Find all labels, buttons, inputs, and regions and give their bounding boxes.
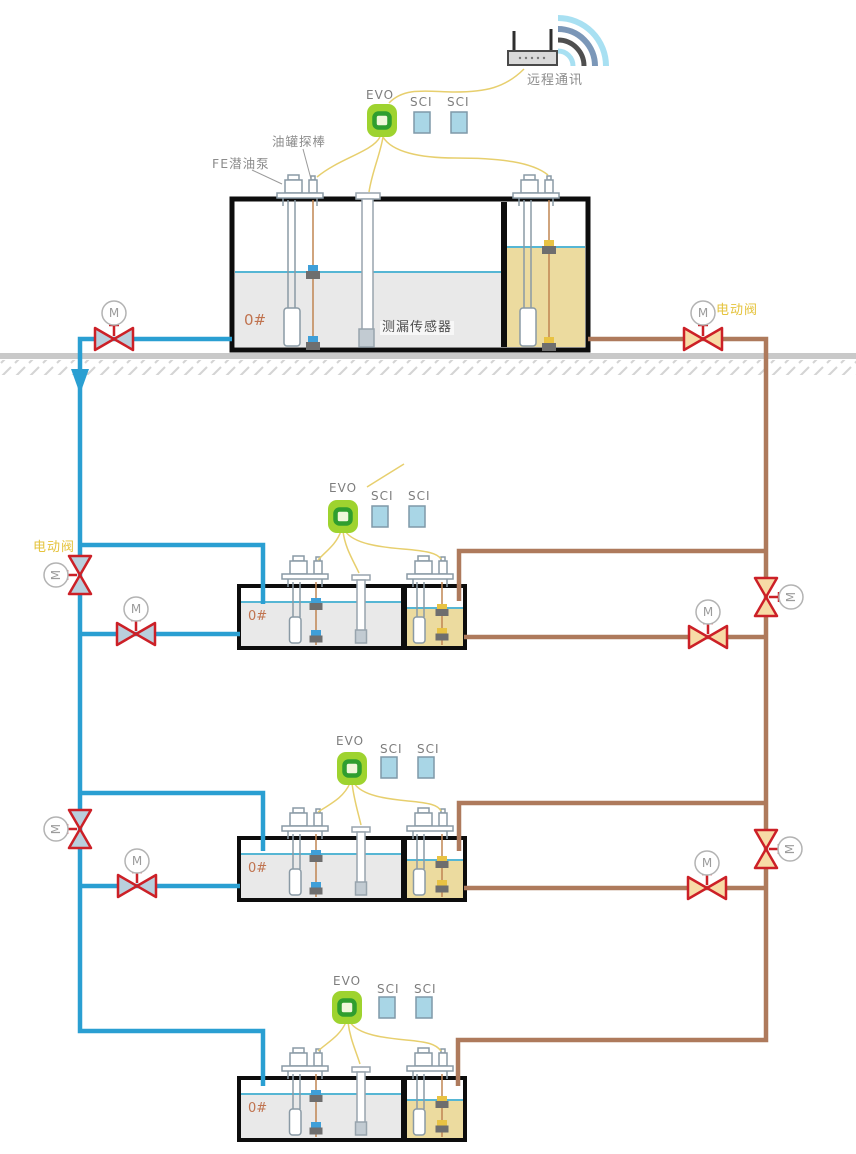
return-pipe-network <box>458 339 766 1086</box>
evo-console <box>328 500 358 533</box>
evo-console <box>332 991 362 1024</box>
motor-letter: M <box>109 306 119 320</box>
sci-module <box>414 112 430 133</box>
station-3-tank <box>239 808 465 900</box>
electric-valve-label: 电动阀 <box>33 541 75 555</box>
submersible-pump-label: FE潜油泵 <box>212 157 270 171</box>
sci-label: SCI <box>380 743 403 756</box>
sci-label: SCI <box>447 96 470 109</box>
sci-label: SCI <box>377 983 400 996</box>
fuel-grade-label: 0# <box>248 1102 267 1116</box>
motor-letter: M <box>784 592 798 602</box>
tank-divider <box>501 202 507 347</box>
evo-label: EVO <box>333 975 361 988</box>
evo-label: EVO <box>366 89 394 102</box>
motor-letter: M <box>698 306 708 320</box>
return-fill-branch-3 <box>459 803 766 851</box>
motor-letter: M <box>702 856 712 870</box>
station-2-tank <box>239 556 465 648</box>
evo-label: EVO <box>336 735 364 748</box>
supply-pipe-network <box>80 339 263 1086</box>
return-pipe-main <box>458 339 766 1086</box>
evo-console <box>337 752 367 785</box>
wire-antenna-stub <box>367 464 404 487</box>
supply-fill-branch-3 <box>80 793 263 851</box>
wifi-signal-icon <box>558 18 606 66</box>
station-4-tank <box>239 1048 465 1140</box>
ground-band <box>0 353 856 359</box>
remote-comm-label: 远程通讯 <box>527 74 583 88</box>
tank-monitoring-diagram: M M M M M M M M M M <box>0 0 856 1154</box>
motor-letter: M <box>49 570 63 580</box>
sci-label: SCI <box>410 96 433 109</box>
sci-label: SCI <box>414 983 437 996</box>
motor-letter: M <box>49 824 63 834</box>
motor-letter: M <box>783 844 797 854</box>
tank-probe-label: 油罐探棒 <box>272 135 326 149</box>
sci-module <box>372 506 388 527</box>
wireless-router <box>508 29 557 65</box>
sci-label: SCI <box>408 490 431 503</box>
motor-letter: M <box>132 854 142 868</box>
motor-valve <box>67 810 91 848</box>
ground-hatch <box>0 360 856 375</box>
return-fill-branch-2 <box>459 551 766 601</box>
sci-module <box>416 997 432 1018</box>
sci-module <box>418 757 434 778</box>
supply-fill-branch-2 <box>80 545 263 604</box>
sci-module <box>381 757 397 778</box>
diagram-canvas: M M M M M M M M M M <box>0 0 856 1154</box>
flow-direction-arrow <box>71 369 89 394</box>
sci-module <box>451 112 467 133</box>
sci-label: SCI <box>371 490 394 503</box>
leak-sensor-label: 测漏传感器 <box>380 321 454 335</box>
motor-valve <box>755 830 779 868</box>
sci-label: SCI <box>417 743 440 756</box>
fuel-grade-label: 0# <box>248 610 267 624</box>
evo-console <box>367 104 397 137</box>
sci-module <box>379 997 395 1018</box>
fuel-grade-label: 0# <box>244 312 266 329</box>
supply-pipe-main <box>80 339 263 1086</box>
fuel-grade-label: 0# <box>248 862 267 876</box>
tank-liquid-right <box>507 247 585 347</box>
motor-letter: M <box>703 605 713 619</box>
evo-label: EVO <box>329 482 357 495</box>
electric-valve-label: 电动阀 <box>716 304 758 318</box>
motor-valve <box>755 578 779 616</box>
motor-letter: M <box>131 602 141 616</box>
sci-module <box>409 506 425 527</box>
motor-valve <box>67 556 91 594</box>
